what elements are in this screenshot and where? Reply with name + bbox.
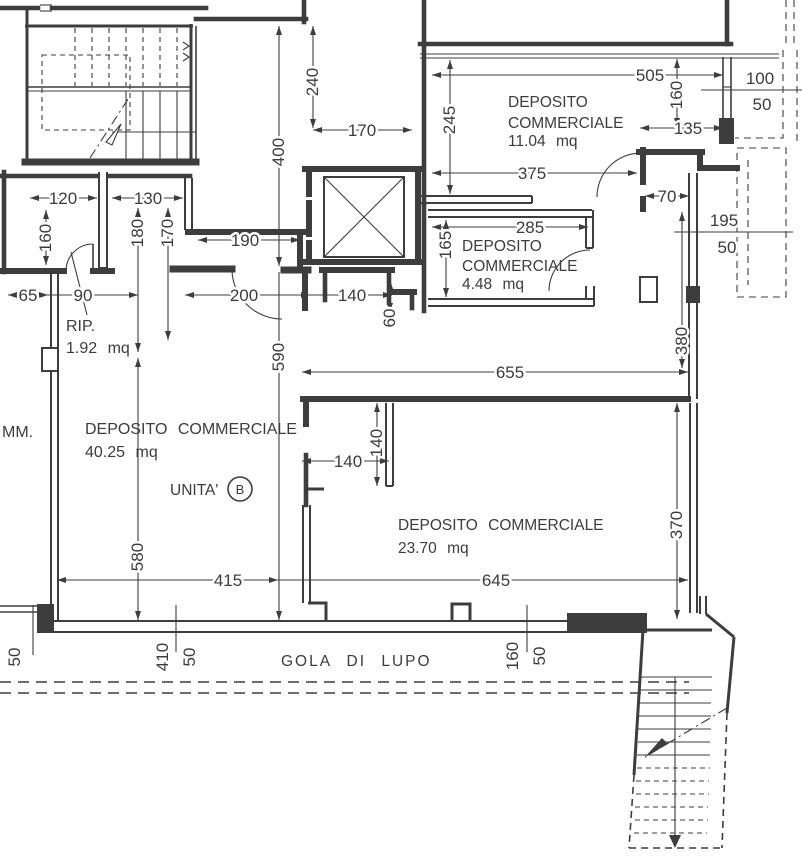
pillar xyxy=(640,277,657,302)
room-11-label-line1: DEPOSITO xyxy=(508,94,588,111)
dim-375: 375 xyxy=(518,164,546,183)
room-rip-label: RIP. xyxy=(66,318,95,335)
dim-580: 580 xyxy=(128,543,147,571)
room-4025-area: 40.25 mq xyxy=(85,444,158,461)
dim-200: 200 xyxy=(230,286,258,305)
room-deposito-4025-walls xyxy=(42,270,58,621)
dim-410: 410 xyxy=(153,643,172,671)
dim-160-bottom-center: 160 xyxy=(503,642,522,670)
dim-50-bottom-left: 50 xyxy=(5,648,24,667)
dim-380: 380 xyxy=(672,327,691,355)
dim-50-r11: 50 xyxy=(753,95,772,114)
dim-370: 370 xyxy=(667,511,686,539)
room-11-area: 11.04 mq xyxy=(508,133,577,150)
dim-190: 190 xyxy=(231,231,259,250)
dim-285: 285 xyxy=(516,218,544,237)
room-4025-label: DEPOSITO COMMERCIALE xyxy=(85,421,297,438)
balcony-dashed-upper xyxy=(735,50,783,138)
dim-165: 165 xyxy=(436,231,455,259)
elevator-shaft xyxy=(305,169,422,262)
dim-655: 655 xyxy=(496,363,524,382)
dim-50-bottom-center: 50 xyxy=(530,647,549,666)
edge-partial-text: MM. xyxy=(2,424,33,441)
dim-65: 65 xyxy=(19,286,38,305)
door-arc-rip-room xyxy=(66,244,93,271)
dim-170-left: 170 xyxy=(158,219,177,247)
dim-50-balcony: 50 xyxy=(718,238,737,257)
dim-590: 590 xyxy=(269,343,288,371)
dim-180: 180 xyxy=(128,219,147,247)
dim-505: 505 xyxy=(636,66,664,85)
dim-135: 135 xyxy=(674,119,702,138)
floor-plan-page: 240 400 170 505 245 160 135 375 100 50 7… xyxy=(0,0,802,857)
dim-240: 240 xyxy=(303,68,322,96)
wall-block-left xyxy=(42,348,58,371)
dim-130: 130 xyxy=(134,189,162,208)
dim-140-stub-v: 140 xyxy=(367,429,386,457)
room-448-area: 4.48 mq xyxy=(462,276,524,293)
unit-letter: B xyxy=(236,482,245,497)
dim-100: 100 xyxy=(746,69,774,88)
dim-195: 195 xyxy=(710,211,738,230)
stair-br-walk-arrow xyxy=(645,738,668,757)
room-2370-area: 23.70 mq xyxy=(398,540,469,557)
wall-block-bottom-left xyxy=(37,604,54,633)
dim-645: 645 xyxy=(482,571,510,590)
stair-bottom-right xyxy=(629,596,734,848)
room-2370-label: DEPOSITO COMMERCIALE xyxy=(398,517,604,534)
dim-120: 120 xyxy=(49,189,77,208)
dim-140-stub-h: 140 xyxy=(334,452,362,471)
wall-block-r11 xyxy=(719,118,734,144)
dim-60: 60 xyxy=(380,309,399,328)
dim-160-left: 160 xyxy=(36,224,55,252)
room-rip-area: 1.92 mq xyxy=(66,340,130,357)
dim-90: 90 xyxy=(74,286,93,305)
stair-br-bottom-arrow xyxy=(669,835,681,848)
stair-top-left xyxy=(25,24,196,162)
hallway-walls xyxy=(173,269,414,319)
top-exterior-walls xyxy=(0,0,306,26)
stair-walk-arrow xyxy=(106,124,121,145)
balcony-dashed-lower xyxy=(737,148,786,297)
dim-140-hall: 140 xyxy=(338,286,366,305)
stair-walk-line xyxy=(90,96,130,158)
room-11-label-line2: COMMERCIALE xyxy=(508,115,623,132)
wall-band-bottom-right xyxy=(567,613,647,633)
room-448-label-line2: COMMERCIALE xyxy=(462,258,577,275)
dim-70: 70 xyxy=(658,187,677,206)
room-448-label-line1: DEPOSITO xyxy=(462,238,542,255)
dim-170-lift: 170 xyxy=(348,121,376,140)
rip-leader-line xyxy=(71,252,87,315)
top-right-room xyxy=(420,0,794,58)
dim-50-bottom-left-2: 50 xyxy=(180,648,199,667)
floor-plan-canvas: 240 400 170 505 245 160 135 375 100 50 7… xyxy=(0,0,802,857)
wall-block-right xyxy=(686,286,700,303)
dim-400: 400 xyxy=(269,138,288,166)
dim-160-r11: 160 xyxy=(667,81,686,109)
dim-415: 415 xyxy=(214,571,242,590)
unit-label: UNITA' xyxy=(170,482,218,499)
door-arc-r11 xyxy=(597,153,641,197)
dim-245: 245 xyxy=(440,106,459,134)
street-label: GOLA DI LUPO xyxy=(281,653,432,670)
bottom-walls xyxy=(0,603,689,693)
